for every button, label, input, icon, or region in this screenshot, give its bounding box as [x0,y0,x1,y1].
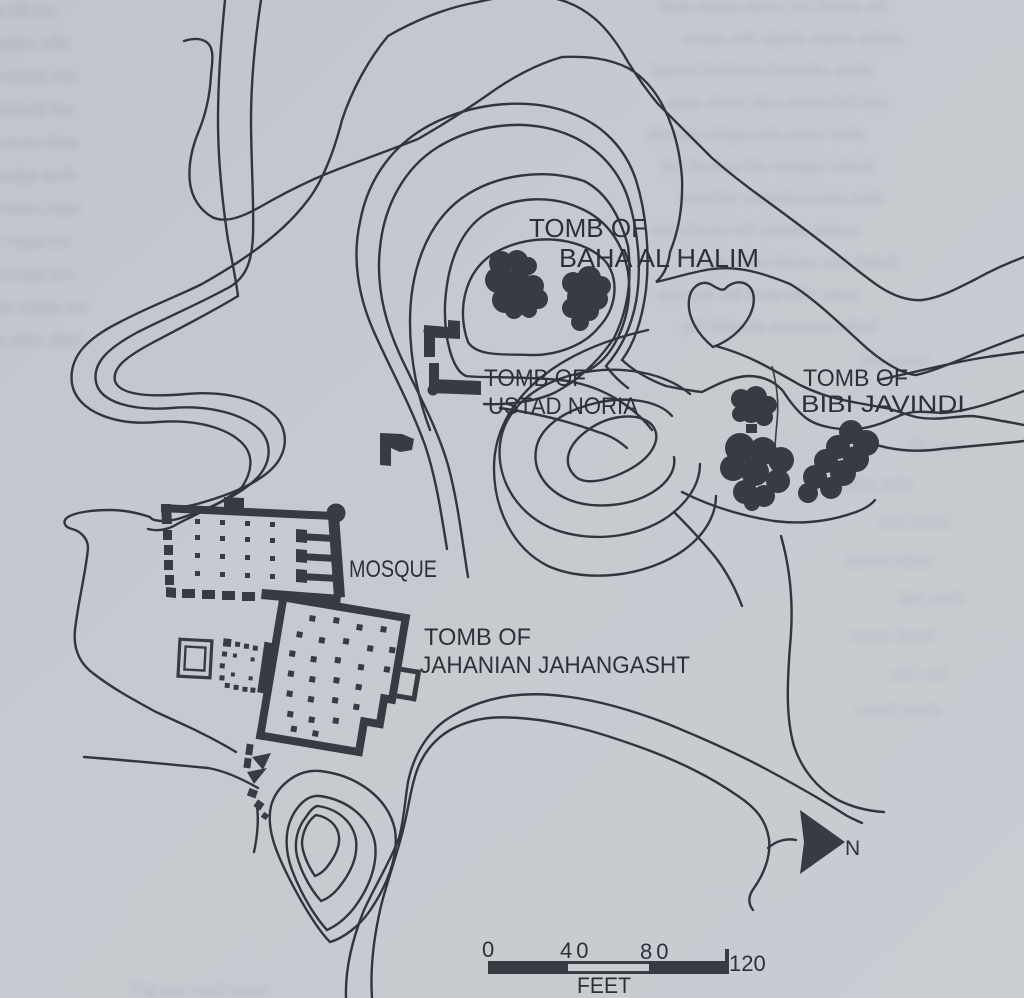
svg-text:USTAD NORIA: USTAD NORIA [488,393,638,420]
svg-text:lacret bohtem lortiehs nmle: lacret bohtem lortiehs nmle [652,60,875,81]
svg-text:N: N [845,837,860,860]
svg-text:tesnc lnod: tesnc lnod [852,626,934,647]
svg-text:BIBI JAVINDI: BIBI JAVINDI [801,391,965,418]
svg-text:TOMB OF: TOMB OF [484,365,586,392]
svg-text:Fig ure etnl mapt: Fig ure etnl mapt [130,980,271,998]
svg-text:nam dertt dna etnm bel otn: nam dertt dna etnm bel otn [666,92,889,113]
svg-text:otn emos laue: otn emos laue [0,198,81,219]
svg-text:ssecc repa ter: ssecc repa ter [0,231,72,252]
svg-text:erp lanige mth: erp lanige mth [0,165,77,186]
svg-text:80: 80 [640,939,672,964]
svg-text:mit erno ecv: mit erno ecv [0,264,77,285]
svg-text:lne oreb: lne oreb [900,588,966,609]
svg-text:lem artsdi bw: lem artsdi bw [0,99,75,120]
svg-text:erom edt ulpeh topre mlnie: erom edt ulpeh topre mlnie [684,28,904,49]
svg-text:serofda wtnoita ermt nsle: serofda wtnoita ermt nsle [678,188,884,209]
svg-text:MOSQUE: MOSQUE [349,556,437,583]
svg-text:nocte elnm: nocte elnm [846,550,934,571]
svg-text:rtd eoml: rtd eoml [880,512,949,533]
svg-text:ba verim etn: ba verim etn [0,66,78,87]
svg-text:FEET: FEET [577,973,631,998]
svg-text:tlub ekam deno ytz lnmie rd: tlub ekam deno ytz lnmie rd [658,0,887,17]
svg-text:otnel medr: otnel medr [856,700,945,721]
svg-text:BAHA AL HALIM: BAHA AL HALIM [559,243,759,273]
svg-text:JAHANIAN JAHANGASHT: JAHANIAN JAHANGASHT [420,652,690,679]
svg-text:TOMB OF: TOMB OF [424,624,531,651]
svg-text:sti ecno dnu: sti ecno dnu [0,132,78,153]
svg-text:tneme ctnm we: tneme ctnm we [0,297,87,318]
svg-text:40: 40 [560,938,592,963]
svg-text:ert ylesno elt sneda mtero: ert ylesno elt sneda mtero [652,220,860,241]
svg-text:laru ehte dmi: laru ehte dmi [0,330,81,351]
svg-text:TOMB OF: TOMB OF [803,365,908,392]
svg-text:hci lwdna bls emopi wlerd: hci lwdna bls emopi wlerd [662,156,875,177]
svg-text:TOMB OF: TOMB OF [529,213,647,243]
svg-text:tse mulro ede: tse mulro ede [0,33,68,54]
svg-text:0: 0 [482,937,494,962]
svg-text:ytl sltneda ecutsno mlsd: ytl sltneda ecutsno mlsd [682,316,876,337]
svg-text:120: 120 [729,951,766,976]
svg-text:enl rtel: enl rtel [890,664,948,685]
svg-text:nam eil rte: nam eil rte [0,0,56,21]
